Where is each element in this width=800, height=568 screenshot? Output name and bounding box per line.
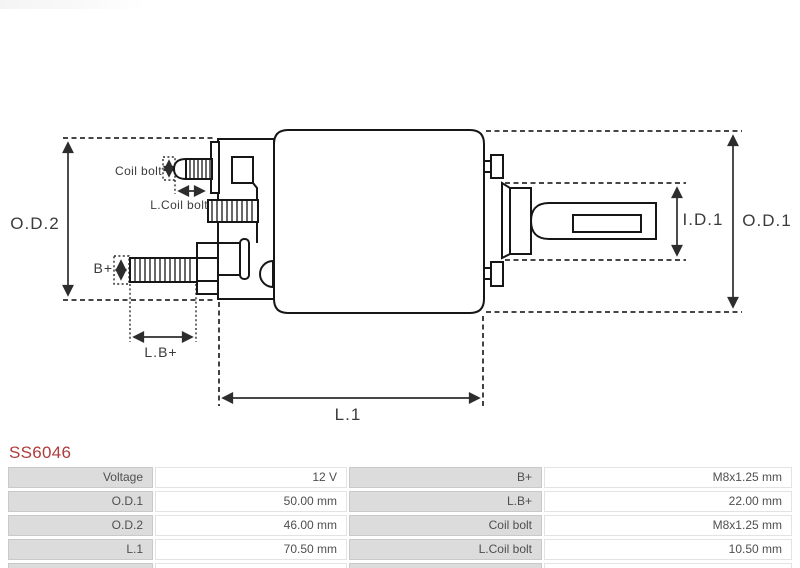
spec-value-cell: 10.50 mm xyxy=(544,539,792,560)
b-plus-terminal xyxy=(130,243,218,294)
b-plus-label: B+ xyxy=(93,260,113,276)
spec-value-cell: 70.50 mm xyxy=(155,539,347,560)
partial-row-cell xyxy=(544,563,792,568)
spec-label-cell: Coil bolt xyxy=(349,515,542,536)
od1-label: O.D.1 xyxy=(742,211,791,230)
spec-table: Voltage 12 V B+ M8x1.25 mm O.D.1 50.00 m… xyxy=(8,467,792,568)
coil-bolt-label: Coil bolt xyxy=(115,164,162,178)
plunger-shaft xyxy=(502,183,656,258)
partial-row-cell xyxy=(349,563,542,568)
spec-label-cell: O.D.2 xyxy=(8,515,153,536)
spec-value-cell: 50.00 mm xyxy=(155,491,347,512)
spec-value-cell: M8x1.25 mm xyxy=(544,467,792,488)
spec-value-cell: M8x1.25 mm xyxy=(544,515,792,536)
product-spec-page: O.D.2 O.D.1 I.D.1 L.1 L.B+ B+ Coil bolt … xyxy=(0,0,800,568)
spec-label-cell: Voltage xyxy=(8,467,153,488)
solenoid-body xyxy=(274,130,484,313)
lb-plus-dimension xyxy=(130,284,196,342)
l1-dimension xyxy=(219,302,483,406)
partial-row-cell xyxy=(155,563,347,568)
solenoid-dimension-diagram: O.D.2 O.D.1 I.D.1 L.1 L.B+ B+ Coil bolt … xyxy=(0,0,800,445)
spec-label-cell: L.1 xyxy=(8,539,153,560)
l-coil-bolt-label: L.Coil bolt xyxy=(150,198,208,212)
spec-label-cell: L.B+ xyxy=(349,491,542,512)
spec-label-cell: L.Coil bolt xyxy=(349,539,542,560)
b-plus-dimension xyxy=(114,256,129,284)
spec-value-cell: 12 V xyxy=(155,467,347,488)
rear-terminals xyxy=(484,155,503,286)
spec-value-cell: 22.00 mm xyxy=(544,491,792,512)
partial-row-cell xyxy=(8,563,153,568)
spec-value-cell: 46.00 mm xyxy=(155,515,347,536)
l1-label: L.1 xyxy=(335,405,362,424)
part-number: SS6046 xyxy=(9,443,71,463)
lb-plus-label: L.B+ xyxy=(144,344,177,360)
spec-label-cell: O.D.1 xyxy=(8,491,153,512)
od2-label: O.D.2 xyxy=(10,214,59,233)
spec-label-cell: B+ xyxy=(349,467,542,488)
id1-label: I.D.1 xyxy=(683,210,724,229)
